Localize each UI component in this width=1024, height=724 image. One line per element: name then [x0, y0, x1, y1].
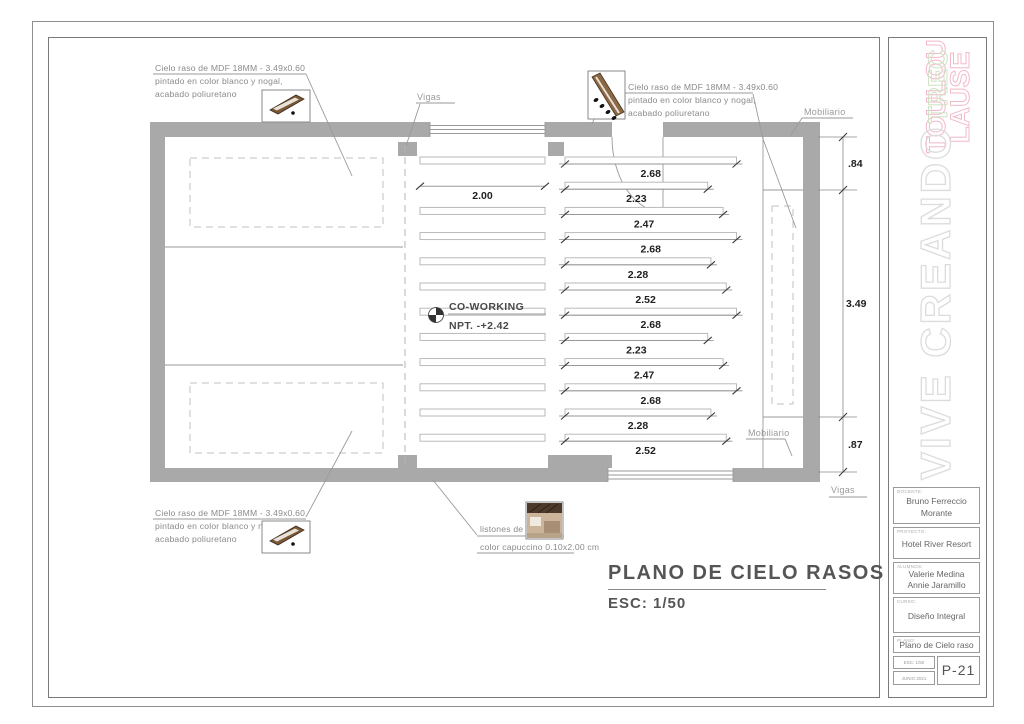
room-level: NPT. -+2.42 [449, 320, 509, 332]
slat [565, 283, 726, 290]
slat [420, 409, 545, 416]
label-mobiliario-bottom: Mobiliario [746, 428, 792, 456]
titleblock-cell-esc: ESC: 1/50 [893, 656, 935, 669]
alumno-1: Valerie Medina [908, 569, 964, 579]
ceiling-panel-dashed-top [190, 158, 383, 227]
slat [420, 283, 545, 290]
note-top-left: Cielo raso de MDF 18MM - 3.49x0.60 pinta… [153, 63, 352, 176]
alumno-2: Annie Jaramillo [907, 580, 965, 590]
slat-dimension: 2.23 [626, 193, 647, 205]
slat [420, 384, 545, 391]
cell-caption: ALUMNOS: [897, 564, 923, 569]
note-line: pintado en color blanco y nogal, [155, 76, 283, 86]
logo-line: TREC [926, 41, 950, 123]
cell-caption: PLANO: [897, 638, 915, 643]
slat [565, 308, 737, 315]
slat-dimension: 2.68 [641, 244, 662, 256]
ceiling-panel-dashed-right [772, 206, 793, 404]
curso-value: Diseño Integral [908, 607, 965, 622]
mobiliario-strip [753, 94, 803, 470]
note-bottom-left: Cielo raso de MDF 18MM - 3.49x0.60 pinta… [153, 431, 352, 544]
slat [565, 359, 723, 366]
window-top [430, 122, 545, 137]
slat [565, 434, 726, 441]
ceiling-panel-dashed-bottom [190, 383, 383, 453]
ceiling-panel-image-bottom-left [262, 521, 310, 553]
interior-photo-image [526, 502, 563, 539]
slat [420, 258, 545, 265]
slat [565, 157, 737, 164]
slat [420, 333, 545, 340]
slat-dimension: 2.00 [472, 190, 493, 202]
note-line: acabado poliuretano [155, 89, 237, 99]
page-title: PLANO DE CIELO RASOS [608, 562, 826, 590]
slat [565, 333, 708, 340]
slat [420, 434, 545, 441]
slat [565, 258, 711, 265]
slat [565, 233, 737, 240]
slat [420, 233, 545, 240]
watermark-text: VIVE CREANDO [907, 150, 965, 480]
titleblock-cell-sheet: P-21 [937, 656, 980, 685]
slat-dimension: 2.28 [628, 420, 649, 432]
slat [565, 384, 737, 391]
esc-value: ESC: 1/50 [904, 658, 925, 666]
room-name: CO-WORKING [449, 301, 524, 313]
slat-dimension: 2.47 [634, 218, 655, 230]
left-room [165, 145, 405, 465]
slat-dimension: 2.47 [634, 370, 655, 382]
side-dim-349: 3.49 [846, 298, 867, 310]
ceiling-panel-image-top-left [262, 90, 310, 122]
level-symbol-icon [429, 308, 444, 323]
sheet-number: P-21 [942, 661, 976, 680]
cell-caption: DOCENTE: [897, 489, 923, 494]
titleblock-cell-docente: DOCENTE: Bruno Ferreccio Morante [893, 487, 980, 524]
slat [420, 157, 545, 164]
side-dim-84: .84 [848, 158, 863, 170]
cell-caption: CURSO: [897, 599, 916, 604]
note-line: acabado poliuretano [155, 534, 237, 544]
slat [420, 359, 545, 366]
note-line: Cielo raso de MDF 18MM - 3.49x0.60 [628, 82, 778, 92]
vigas-label: Vigas [417, 92, 441, 102]
side-dimension-chain: .84 3.49 .87 [818, 133, 867, 476]
slat-dimension: 2.23 [626, 344, 647, 356]
label-vigas-top: Vigas [406, 92, 455, 146]
titleblock-cell-alumnos: ALUMNOS: Valerie Medina Annie Jaramillo [893, 562, 980, 594]
scale-label: ESC: 1/50 [608, 595, 826, 612]
mobiliario-label: Mobiliario [804, 107, 846, 117]
slat-dimension: 2.52 [635, 445, 656, 457]
ceiling-panel-image-top-right [588, 71, 625, 121]
cell-caption: PROYECTO: [897, 529, 926, 534]
titleblock-cell-fecha: JUNIO 2021 [893, 671, 935, 685]
slat [565, 182, 708, 189]
mobiliario-label: Mobiliario [748, 428, 790, 438]
slat-dimension: 2.28 [628, 269, 649, 281]
drawing-title-block: PLANO DE CIELO RASOS ESC: 1/50 [608, 562, 826, 612]
note-line: Cielo raso de MDF 18MM - 3.49x0.60 [155, 508, 305, 518]
fecha-value: JUNIO 2021 [902, 674, 927, 682]
proyecto-value: Hotel River Resort [902, 535, 971, 550]
note-line: acabado poliuretano [628, 108, 710, 118]
title-block-sidebar: TOULOU LAUSE TREC VIVE CREANDO DOCENTE: … [888, 37, 987, 698]
slat-dimension: 2.68 [641, 395, 662, 407]
docente-value: Bruno Ferreccio Morante [894, 492, 979, 519]
note-listones: listones de madera, color capuccino 0.10… [433, 480, 599, 553]
slat-dimension: 2.52 [635, 294, 656, 306]
note-line: pintado en color blanco y nogal, [628, 95, 756, 105]
slat-dimension: 2.68 [641, 168, 662, 180]
side-dim-87: .87 [848, 439, 863, 451]
titleblock-cell-curso: CURSO: Diseño Integral [893, 597, 980, 633]
window-bottom [608, 468, 733, 482]
slat [420, 207, 545, 214]
label-vigas-bottom: Vigas [829, 485, 867, 497]
floor-plan-canvas: 2.682.232.472.682.282.522.682.232.472.68… [0, 0, 1024, 724]
slat [565, 409, 711, 416]
titleblock-cell-proyecto: PROYECTO: Hotel River Resort [893, 527, 980, 559]
note-line: color capuccino 0.10x2.00 cm [480, 542, 599, 552]
note-line: Cielo raso de MDF 18MM - 3.49x0.60 [155, 63, 305, 73]
slat-dimension: 2.68 [641, 319, 662, 331]
titleblock-cell-plano: PLANO: Plano de Cielo raso [893, 636, 980, 653]
vigas-label: Vigas [831, 485, 855, 495]
slat [565, 207, 723, 214]
room-label: CO-WORKING NPT. -+2.42 [448, 301, 546, 332]
